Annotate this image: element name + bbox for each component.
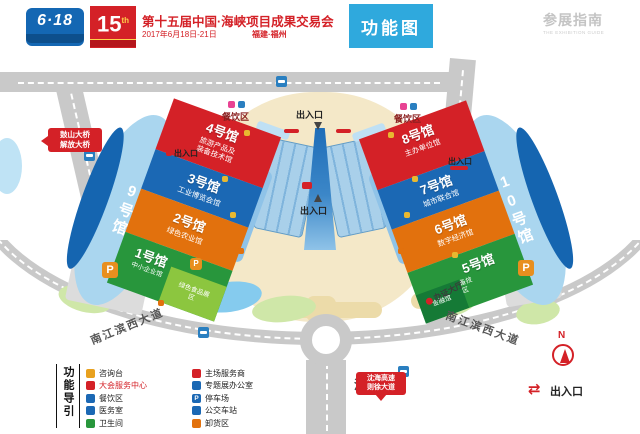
parking-icon: P (518, 260, 534, 276)
service-center-icon (86, 381, 95, 390)
legend-label: 卫生间 (99, 418, 123, 429)
exit-legend-label: 出入口 (550, 383, 583, 399)
facility-marker-icon (230, 212, 236, 218)
legend-label: 医务室 (99, 405, 123, 416)
15th-number: 15 (97, 11, 121, 36)
legend-label: 卸货区 (205, 418, 229, 429)
special-exhibition-office-icon (192, 381, 201, 390)
gate-sign-marker (284, 129, 299, 133)
guide-wordmark: 参展指南 THE EXHIBITION GUIDE (543, 10, 604, 35)
badge-line2: 解放大桥 (52, 140, 98, 150)
legend-label: 咨询台 (99, 368, 123, 379)
dining-marker-icon (400, 103, 407, 110)
event-date: 2017年6月18日-21日 (142, 29, 217, 40)
entrance-label-west: 出入口 (174, 148, 198, 159)
restroom-icon (86, 419, 95, 428)
bridge-direction-badge: 鼓山大桥 解放大桥 (48, 128, 102, 152)
legend-title: 功能导引 (56, 364, 80, 428)
dining-area-label-west: 餐饮区 (222, 110, 249, 123)
legend-label: 停车场 (205, 393, 229, 404)
15th-suffix: th (121, 16, 129, 25)
legend-item-service-center: 大会服务中心 (86, 381, 147, 391)
facility-marker-icon (404, 212, 410, 218)
facility-marker-icon (398, 248, 404, 254)
badge-line1: 鼓山大桥 (52, 130, 98, 140)
facility-marker-icon (412, 176, 418, 182)
parking-icon: P (190, 258, 202, 270)
pond (0, 138, 22, 194)
dining-icon (86, 394, 95, 403)
compass-icon (552, 344, 574, 366)
event-city: 福建·福州 (252, 29, 287, 40)
dining-marker-icon (228, 101, 235, 108)
dining-marker-icon (238, 101, 245, 108)
expressway-direction-badge: 沈海高速 则徐大道 (356, 372, 406, 395)
legend-column-2: 主场服务商 专题展办公室 P 停车场 公交车站 卸货区 (192, 368, 253, 431)
left-arrow-icon (41, 136, 48, 146)
legend-label: 公交车站 (205, 405, 237, 416)
legend-item-dining: 餐饮区 (86, 393, 147, 403)
facility-marker-icon (222, 176, 228, 182)
guide-subtitle: THE EXHIBITION GUIDE (543, 30, 604, 35)
15th-logo-strip (90, 39, 136, 47)
618-logo: 6·18 (26, 8, 84, 46)
legend-item-special-office: 专题展办公室 (192, 381, 253, 391)
legend-label: 餐饮区 (99, 393, 123, 404)
compass-north-label: N (558, 330, 565, 341)
legend-item-restroom: 卫生间 (86, 418, 147, 428)
bus-station-icon (192, 406, 201, 415)
pandun-road (306, 360, 346, 434)
road-dash (326, 363, 328, 431)
bus-stop-icon (198, 327, 209, 338)
facility-marker-icon (238, 248, 244, 254)
legend-item-main-contractor: 主场服务商 (192, 368, 253, 378)
facility-marker-icon (244, 130, 250, 136)
unloading-area-icon (192, 419, 201, 428)
badge-line1: 沈海高速 (360, 374, 402, 383)
guide-title: 参展指南 (543, 10, 604, 30)
medical-room-icon (86, 406, 95, 415)
legend-label: 专题展办公室 (205, 380, 253, 391)
parking-legend-icon: P (192, 394, 201, 403)
legend-item-parking: P 停车场 (192, 393, 253, 403)
down-arrow-icon (375, 394, 387, 401)
dining-marker-icon (410, 103, 417, 110)
road-dash (18, 82, 439, 84)
618-logo-text: 6·18 (26, 8, 84, 34)
legend-label: 大会服务中心 (99, 380, 147, 391)
legend-column-1: 咨询台 大会服务中心 餐饮区 医务室 卫生间 (86, 368, 147, 431)
exhibition-function-map: 6·18 15th 第十五届中国·海峡项目成果交易会 2017年6月18日-21… (0, 0, 640, 434)
service-center-marker-icon (302, 182, 312, 189)
entrance-label-north: 出入口 (296, 108, 323, 121)
roundabout (300, 314, 352, 366)
bus-stop-icon (276, 76, 287, 87)
tab-function-map[interactable]: 功能图 (349, 4, 433, 48)
legend-item-bus-station: 公交车站 (192, 406, 253, 416)
15th-logo: 15th (90, 6, 136, 48)
legend-item-unloading: 卸货区 (192, 418, 253, 428)
gate-sign-marker (336, 129, 351, 133)
618-logo-strip (26, 34, 84, 43)
hall-1-annex-label: 绿色食品展区 (174, 281, 212, 308)
facility-marker-icon (158, 300, 164, 306)
legend-item-info-desk: 咨询台 (86, 368, 147, 378)
entrance-marker-icon (166, 150, 172, 156)
facility-marker-icon (388, 132, 394, 138)
entrance-label-center: 出入口 (300, 204, 327, 217)
facility-marker-icon (452, 252, 458, 258)
event-title: 第十五届中国·海峡项目成果交易会 (142, 11, 334, 30)
parking-icon: P (102, 262, 118, 278)
exit-arrows-icon: ⇄ (528, 380, 541, 398)
entrance-arrow-icon (314, 122, 322, 130)
info-desk-icon (86, 369, 95, 378)
15th-logo-number: 15th (90, 6, 136, 39)
dining-area-label-east: 餐饮区 (394, 112, 421, 125)
badge-line2: 则徐大道 (360, 383, 402, 392)
main-contractor-icon (192, 369, 201, 378)
legend-label: 主场服务商 (205, 368, 245, 379)
compass-needle (560, 349, 570, 363)
entrance-arrow-icon (314, 194, 322, 202)
entrance-marker-icon (450, 166, 468, 170)
legend-item-medical: 医务室 (86, 406, 147, 416)
